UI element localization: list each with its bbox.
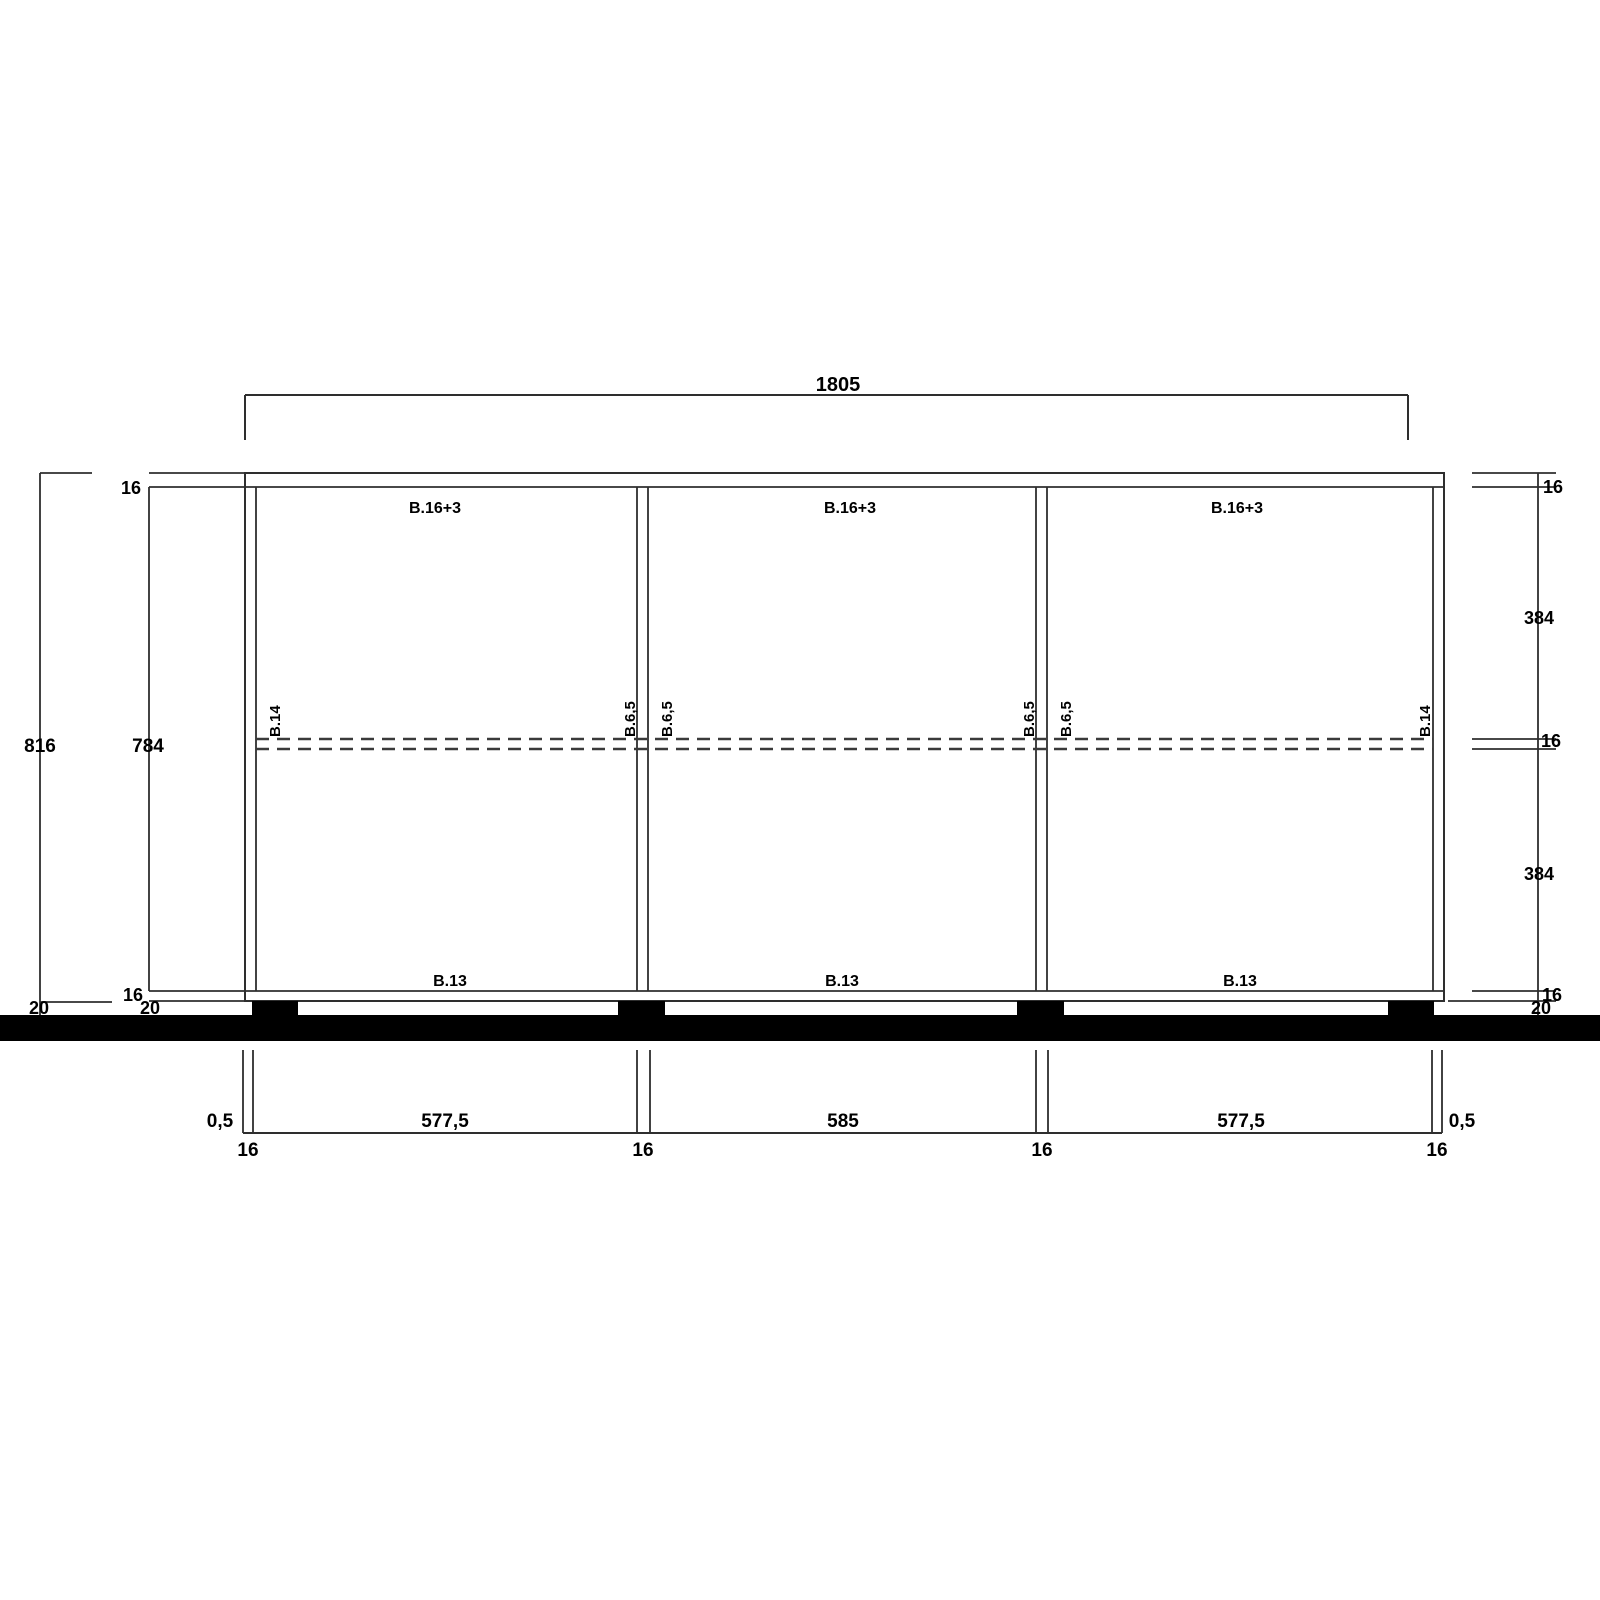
foot-1 bbox=[252, 1001, 298, 1015]
dim-plinth-right: 20 bbox=[1531, 998, 1551, 1018]
part-divider1-left: B.6,5 bbox=[622, 701, 639, 737]
cabinet-technical-drawing: 1805 816 784 16 16 20 20 16 384 16 384 1… bbox=[0, 0, 1600, 1600]
foot-4 bbox=[1388, 1001, 1434, 1015]
cabinet-outline bbox=[245, 473, 1444, 1001]
dim-bottom: 0,5 577,5 585 577,5 0,5 16 16 16 16 bbox=[207, 1050, 1476, 1161]
dim-plinth-left-outer: 20 bbox=[29, 998, 49, 1018]
feet bbox=[252, 1001, 1434, 1015]
foot-3 bbox=[1017, 1001, 1064, 1015]
dim-top-panel-right: 16 bbox=[1543, 477, 1563, 497]
dim-bay-left: 577,5 bbox=[421, 1111, 469, 1132]
dim-plinth-left-inner: 20 bbox=[140, 998, 160, 1018]
part-bottom-panel-2: B.13 bbox=[825, 973, 859, 990]
dim-upper-bay: 384 bbox=[1524, 608, 1554, 628]
foot-2 bbox=[618, 1001, 665, 1015]
dim-divider2-thickness: 16 bbox=[1031, 1140, 1052, 1161]
dim-right: 16 384 16 384 16 20 bbox=[1448, 473, 1563, 1018]
dim-left-panel-thickness: 16 bbox=[237, 1140, 258, 1161]
dim-top-panel-left: 16 bbox=[121, 478, 141, 498]
part-labels: B.16+3 B.16+3 B.16+3 B.13 B.13 B.13 B.14… bbox=[267, 500, 1434, 990]
dim-overall-height: 816 bbox=[24, 736, 56, 757]
dim-edge-right: 0,5 bbox=[1449, 1111, 1476, 1132]
part-divider1-right: B.6,5 bbox=[659, 701, 676, 737]
dim-bay-center: 585 bbox=[827, 1111, 859, 1132]
part-top-panel-3: B.16+3 bbox=[1211, 500, 1263, 517]
cabinet-outer-rect bbox=[245, 473, 1444, 1001]
part-top-panel-1: B.16+3 bbox=[409, 500, 461, 517]
dim-right-panel-thickness: 16 bbox=[1426, 1140, 1447, 1161]
part-bottom-panel-3: B.13 bbox=[1223, 973, 1257, 990]
dim-shelf-thickness: 16 bbox=[1541, 731, 1561, 751]
part-bottom-panel-1: B.13 bbox=[433, 973, 467, 990]
dim-left: 816 784 16 16 20 20 bbox=[24, 473, 246, 1018]
part-top-panel-2: B.16+3 bbox=[824, 500, 876, 517]
part-right-side: B.14 bbox=[1417, 705, 1434, 737]
dim-divider1-thickness: 16 bbox=[632, 1140, 653, 1161]
dim-top: 1805 bbox=[245, 374, 1408, 440]
part-divider2-right: B.6,5 bbox=[1058, 701, 1075, 737]
dim-edge-left: 0,5 bbox=[207, 1111, 234, 1132]
dim-bay-right: 577,5 bbox=[1217, 1111, 1265, 1132]
part-left-side: B.14 bbox=[267, 705, 284, 737]
dim-lower-bay: 384 bbox=[1524, 864, 1554, 884]
dim-interior-height: 784 bbox=[132, 736, 164, 757]
drawing-canvas: 1805 816 784 16 16 20 20 16 384 16 384 1… bbox=[0, 0, 1600, 1600]
floor-line bbox=[0, 1015, 1600, 1041]
dim-total-width: 1805 bbox=[816, 374, 861, 396]
part-divider2-left: B.6,5 bbox=[1021, 701, 1038, 737]
shelf-dashed-lines bbox=[256, 739, 1433, 749]
